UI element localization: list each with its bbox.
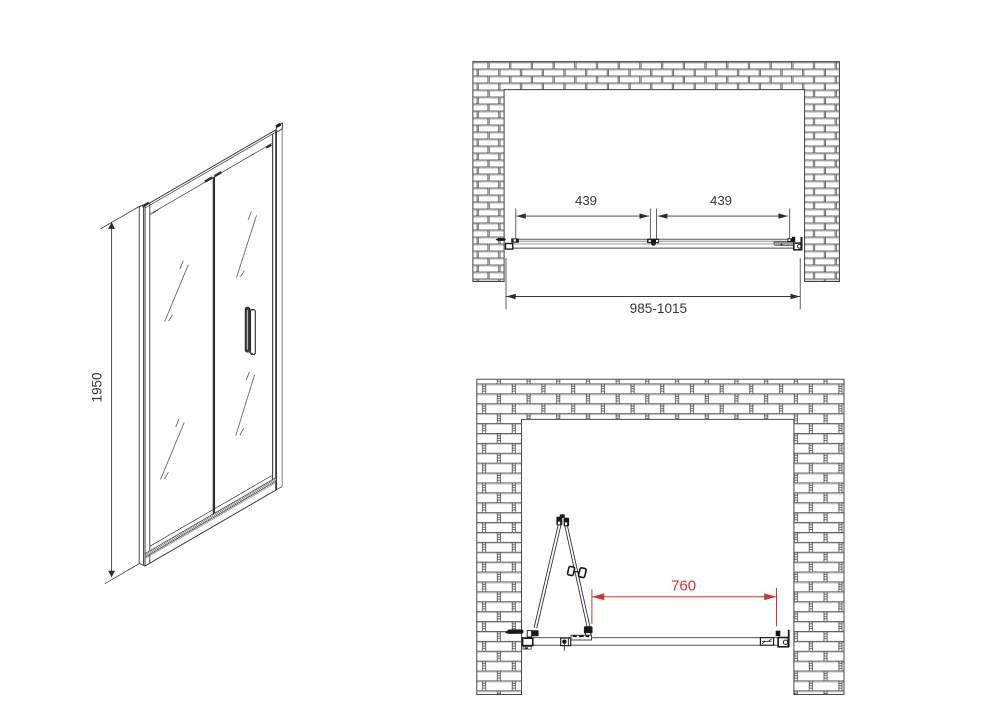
svg-text:439: 439 xyxy=(710,193,732,208)
svg-text:760: 760 xyxy=(671,578,696,595)
svg-text:1950: 1950 xyxy=(90,372,105,402)
svg-text:439: 439 xyxy=(575,193,597,208)
svg-text:985-1015: 985-1015 xyxy=(630,301,687,316)
